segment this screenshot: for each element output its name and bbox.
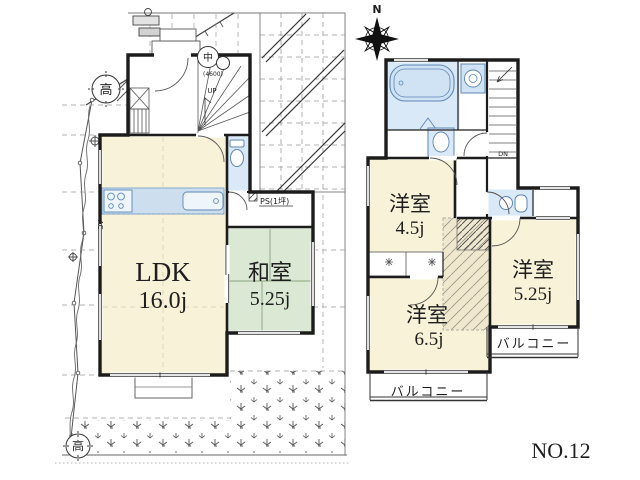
label-dn: DN: [498, 150, 508, 158]
label-balcony-east: バルコニー: [497, 336, 572, 351]
label-plan-number: NO.12: [531, 438, 590, 463]
floorplan-drawing: N LDK 16.0j 和室 5.25j 洋室 4.5j 洋室 5.25j 洋室…: [0, 0, 640, 480]
toilet-1f-icon: [230, 140, 244, 167]
label-room525-area: 5.25j: [514, 284, 553, 305]
label-marker-taka-2: 高: [72, 438, 84, 453]
void-hatch: [443, 218, 490, 330]
label-up: UP: [207, 87, 216, 95]
label-room65-area: 6.5j: [414, 329, 443, 350]
floorplan-canvas: N LDK 16.0j 和室 5.25j 洋室 4.5j 洋室 5.25j 洋室…: [0, 0, 640, 480]
label-washitsu-area: 5.25j: [250, 288, 291, 310]
label-marker-naka-value: (4600): [203, 71, 223, 78]
carport-hatch: [260, 13, 345, 195]
compass-icon: [354, 16, 401, 63]
label-balcony-south: バルコニー: [391, 384, 466, 399]
label-washitsu-name: 和室: [248, 260, 292, 285]
sink-icon: [183, 192, 223, 210]
label-ldk-name: LDK: [135, 257, 191, 287]
label-room525-name: 洋室: [512, 258, 554, 282]
label-marker-taka-1: 高: [99, 82, 112, 97]
label-ps: PS(1坪): [260, 197, 289, 206]
label-ldk-area: 16.0j: [139, 288, 188, 314]
washbasin-icon: [428, 128, 454, 156]
kitchen-counter-icon: [102, 188, 224, 214]
label-north: N: [372, 3, 381, 16]
washing-machine-icon: [461, 64, 485, 93]
stove-icon: [104, 190, 132, 212]
label-ac: AC: [96, 220, 104, 230]
label-room45-area: 4.5j: [395, 218, 424, 239]
label-room65-name: 洋室: [406, 303, 448, 327]
grass-area: [65, 371, 345, 453]
label-room45-name: 洋室: [389, 192, 431, 216]
label-marker-naka: 中: [203, 51, 213, 64]
